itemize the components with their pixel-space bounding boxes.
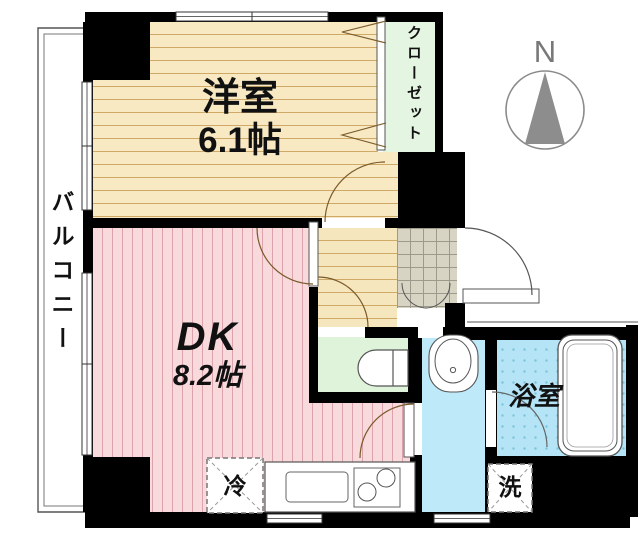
dk-room-label: DK 8.2帖: [125, 308, 290, 400]
washroom-door-leaf: [404, 403, 414, 457]
floor-plan: 洋室 6.1帖 DK 8.2帖 バルコニー クローゼット 浴室 冷 洗 N: [0, 0, 640, 539]
balcony-label: バルコニー: [46, 180, 74, 370]
room-name: 洋室: [202, 77, 278, 121]
pillar-top-left: [85, 12, 150, 80]
wall-toilet-left: [309, 327, 318, 403]
closet-label: クローゼット: [400, 21, 422, 149]
bath-label: 浴室: [495, 382, 573, 412]
compass-icon: [506, 71, 584, 149]
toilet-door-arc: [318, 277, 368, 327]
entrance-door-leaf: [463, 289, 539, 303]
wall-western-south-a: [85, 218, 322, 228]
kitchen-counter: [265, 462, 415, 512]
wall-western-south-b: [385, 218, 398, 228]
western-room-label: 洋室 6.1帖: [145, 70, 335, 168]
compass-north-arrow: [525, 72, 565, 144]
washroom-entry-opening: [418, 329, 443, 338]
wall-dk-hall-divider: [309, 287, 318, 330]
washbasin-bowl: [435, 339, 471, 383]
wall-toilet-right: [408, 330, 422, 403]
western-door-opening: [322, 219, 385, 228]
entrance-door-arc: [465, 228, 532, 295]
dk-hall-door-leaf: [309, 222, 318, 286]
pillar-bottom-left: [85, 457, 150, 515]
room-size: 6.1帖: [198, 121, 282, 161]
western-door-arc: [325, 162, 385, 222]
toilet: [358, 350, 408, 386]
toilet-bowl: [358, 350, 408, 386]
pillar-entry: [398, 152, 465, 228]
wall-toilet-south: [309, 392, 422, 403]
compass-north-label: N: [531, 34, 559, 68]
shoe-cabinet-arc-left: [402, 283, 427, 308]
washer-label: 洗: [488, 474, 532, 502]
dk-hall-door-arc: [257, 228, 313, 284]
room-size: 8.2帖: [173, 360, 242, 393]
washbasin: [429, 335, 478, 392]
toilet-door-opening: [318, 328, 365, 337]
room-name: DK: [177, 314, 239, 360]
kitchen-sink: [286, 472, 348, 502]
stove-burner-1: [358, 483, 376, 501]
closet-folding-door: [377, 17, 385, 150]
fridge-label: 冷: [207, 473, 263, 501]
wall-closet-right: [435, 12, 443, 152]
stove-burner-2: [377, 469, 395, 487]
